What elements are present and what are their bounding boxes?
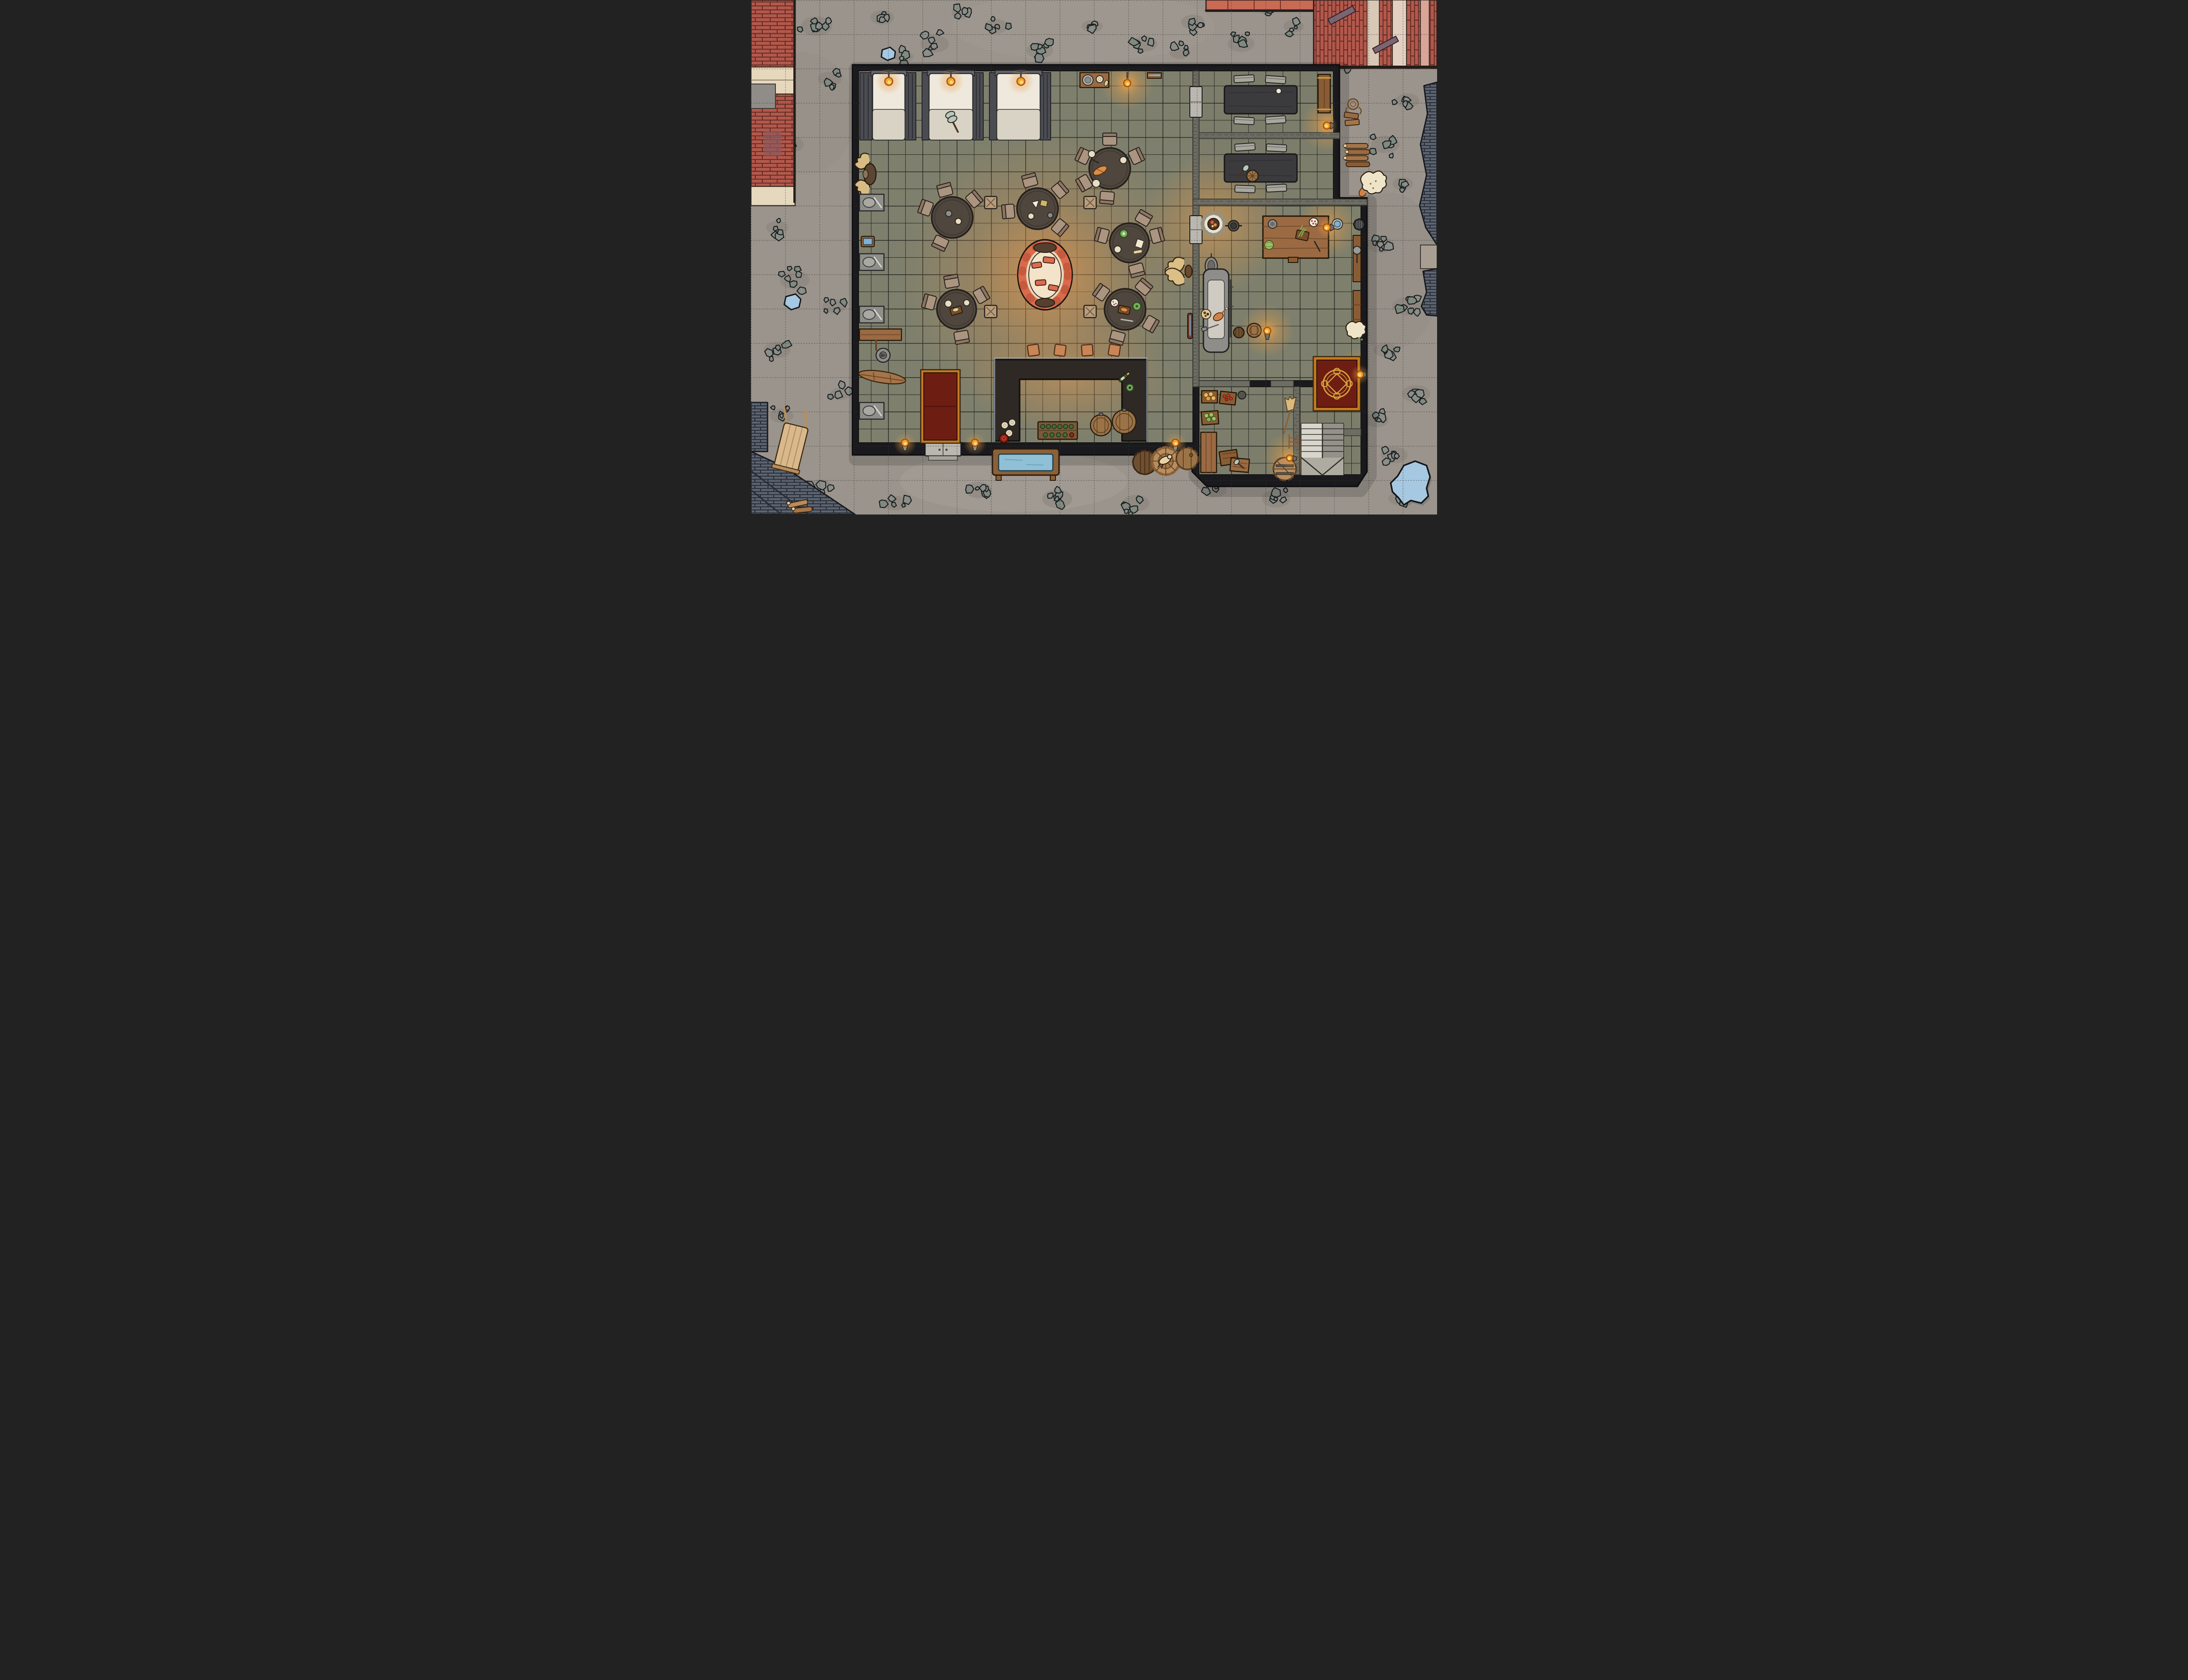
staircase-down [1301, 423, 1343, 475]
armor-rack-4 [859, 402, 884, 419]
kitchen-drain-grate [1353, 219, 1365, 230]
entry-rug [921, 370, 960, 443]
armor-rack-3 [859, 306, 884, 323]
round-shield-decor [876, 348, 890, 362]
arcane-rug [1313, 357, 1360, 411]
map-canvas [751, 0, 1437, 514]
top-wall-basin-table [1080, 73, 1109, 87]
scene-root [751, 0, 1437, 514]
sheathed-sword-wall [1188, 313, 1192, 339]
fire-pit [1018, 240, 1072, 310]
armor-rack-2 [859, 254, 884, 270]
kitchen-stove-fire [1203, 213, 1224, 235]
support-post-2 [1084, 196, 1096, 209]
wall-bench-blue-cushion [861, 236, 874, 247]
top-wall-towel-shelf [1147, 73, 1161, 78]
support-post-3 [985, 305, 997, 318]
private-room-cabinet [1318, 74, 1330, 113]
armor-rack-1 [859, 194, 884, 211]
kitchen-food-plate [1201, 309, 1211, 319]
support-post-1 [985, 196, 997, 209]
bar-back-bottle-crate [1038, 422, 1077, 439]
kitchen-wall-shelf-1 [1353, 235, 1361, 282]
water-trough [992, 449, 1059, 480]
support-post-4 [1084, 305, 1096, 318]
pantry-long-table [1201, 432, 1217, 472]
tavern-battlemap [751, 0, 1437, 514]
